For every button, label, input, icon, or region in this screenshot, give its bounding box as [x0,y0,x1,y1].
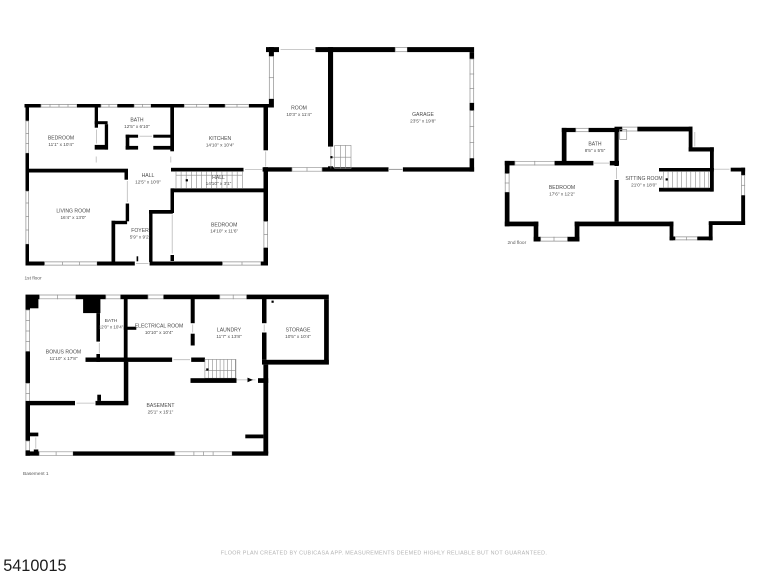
svg-text:17'6" x 12'2": 17'6" x 12'2" [549,191,575,196]
svg-text:10'3" x 11'4": 10'3" x 11'4" [286,112,312,117]
svg-text:8'5" x 5'5": 8'5" x 5'5" [585,148,606,153]
svg-text:1st floor: 1st floor [25,276,42,282]
svg-text:16'4" x 13'0": 16'4" x 13'0" [60,215,86,220]
svg-text:11'7" x 13'8": 11'7" x 13'8" [216,334,242,339]
svg-text:BONUS ROOM: BONUS ROOM [46,350,81,356]
svg-text:14'10" x 10'4": 14'10" x 10'4" [206,142,235,147]
svg-text:11'1" x 10'4": 11'1" x 10'4" [48,142,74,147]
svg-text:HALL: HALL [212,175,225,181]
svg-text:BEDROOM: BEDROOM [211,222,237,228]
svg-text:21'0" x 18'0": 21'0" x 18'0" [631,182,657,187]
svg-text:23'5" x 19'8": 23'5" x 19'8" [410,118,436,123]
svg-text:12'0" x 10'4": 12'0" x 10'4" [99,324,124,329]
svg-text:Basement 1: Basement 1 [23,471,49,477]
svg-text:HALL: HALL [142,173,155,179]
svg-text:2nd floor: 2nd floor [508,240,527,246]
svg-text:BATH: BATH [105,318,118,324]
svg-text:BATH: BATH [130,118,144,124]
svg-text:5'9" x 9'2": 5'9" x 9'2" [130,234,151,239]
svg-text:10'5" x 10'4": 10'5" x 10'4" [285,334,311,339]
svg-text:ROOM: ROOM [291,106,307,112]
svg-text:FOYER: FOYER [131,228,149,234]
svg-text:11'10" x 17'8": 11'10" x 17'8" [50,356,78,361]
svg-text:STORAGE: STORAGE [286,328,311,334]
svg-text:BEDROOM: BEDROOM [48,136,74,142]
svg-text:BATH: BATH [588,142,602,148]
svg-text:KITCHEN: KITCHEN [209,136,232,142]
svg-text:SITTING ROOM: SITTING ROOM [625,176,662,182]
svg-text:LIVING ROOM: LIVING ROOM [56,209,90,215]
svg-text:BEDROOM: BEDROOM [549,185,575,191]
svg-text:14'10" x 3'1": 14'10" x 3'1" [206,181,232,186]
svg-text:BASEMENT: BASEMENT [146,403,174,409]
svg-text:25'1" x 15'1": 25'1" x 15'1" [148,409,174,414]
svg-text:ELECTRICAL ROOM: ELECTRICAL ROOM [135,324,184,330]
svg-text:12'5" x 6'10": 12'5" x 6'10" [124,124,150,129]
svg-text:5410015: 5410015 [3,557,66,575]
svg-text:12'5" x 10'0": 12'5" x 10'0" [135,179,161,184]
svg-text:10'10" x 10'4": 10'10" x 10'4" [145,330,174,335]
svg-text:14'10" x 11'6": 14'10" x 11'6" [210,229,238,234]
svg-text:GARAGE: GARAGE [412,112,434,118]
svg-text:LAUNDRY: LAUNDRY [217,328,242,334]
svg-text:FLOOR PLAN CREATED BY CUBICASA: FLOOR PLAN CREATED BY CUBICASA APP. MEAS… [221,551,548,557]
